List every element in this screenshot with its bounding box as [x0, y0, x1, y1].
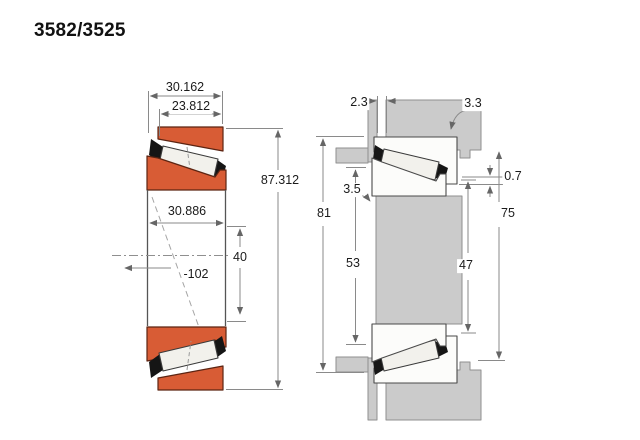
- housing-wing-top: [336, 148, 368, 163]
- dim-offset-ref: -102: [181, 268, 210, 282]
- mounted-bearing-top: [372, 137, 457, 196]
- bearing-datasheet-figure: 3582/3525 30.162 23.812 87.312 30.886 40…: [0, 0, 640, 440]
- dim-cup-width: 23.812: [170, 100, 212, 114]
- dim-housing-fillet: 3.3: [462, 97, 483, 111]
- dim-bore-ref: 40: [231, 251, 249, 265]
- housing-wing-bottom: [336, 357, 368, 372]
- dim-cone-width: 30.886: [166, 205, 208, 219]
- dim-total-width: 30.162: [164, 81, 206, 95]
- dim-shaft-fillet: 3.5: [341, 183, 362, 197]
- dim-housing-span: 81: [315, 207, 333, 221]
- dim-outer-diameter: 87.312: [259, 174, 301, 188]
- mounted-bearing-bottom: [372, 324, 457, 383]
- dim-shaft-shoulder-span: 53: [344, 257, 362, 271]
- left-cross-section: [112, 91, 283, 390]
- dim-shaft-abutment-span: 47: [457, 259, 475, 273]
- dim-spacer-gap: 2.3: [348, 96, 369, 110]
- part-number-title: 3582/3525: [34, 20, 126, 42]
- shaft-body: [376, 196, 462, 324]
- dim-cup-standout: 0.7: [502, 170, 523, 184]
- dim-housing-shoulder-span: 75: [499, 207, 517, 221]
